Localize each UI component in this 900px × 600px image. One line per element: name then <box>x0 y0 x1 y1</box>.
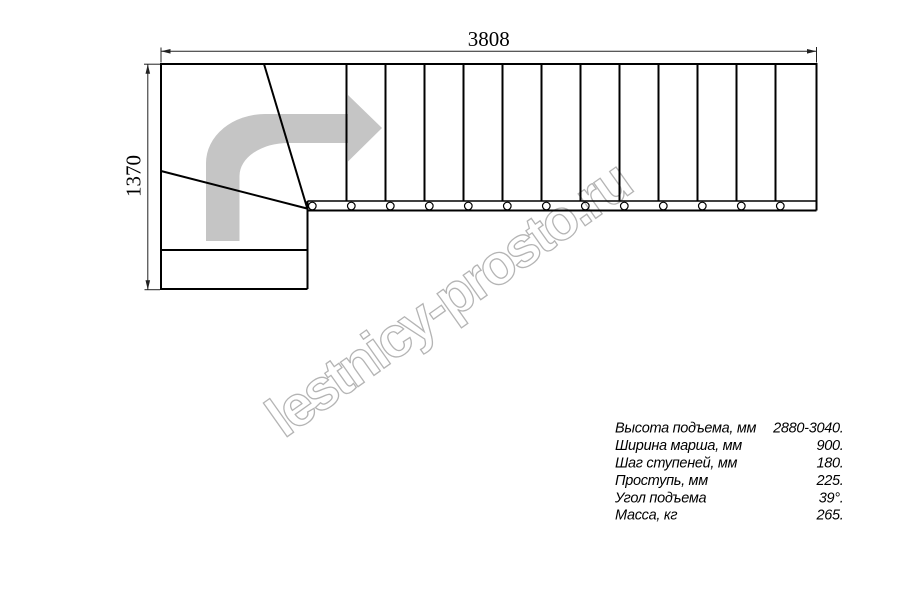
svg-text:39°.: 39°. <box>819 490 844 506</box>
svg-text:Угол подъема: Угол подъема <box>614 490 706 506</box>
svg-text:Проступь, мм: Проступь, мм <box>615 473 708 489</box>
svg-text:900.: 900. <box>816 438 843 454</box>
svg-text:1370: 1370 <box>122 155 146 197</box>
svg-text:Масса, кг: Масса, кг <box>615 508 677 524</box>
svg-text:2880-3040.: 2880-3040. <box>772 421 843 437</box>
svg-text:Высота подъема, мм: Высота подъема, мм <box>615 421 757 437</box>
svg-text:3808: 3808 <box>468 27 510 51</box>
svg-text:265.: 265. <box>815 508 843 524</box>
svg-text:180.: 180. <box>816 456 843 472</box>
svg-text:Шаг ступеней, мм: Шаг ступеней, мм <box>615 456 737 472</box>
svg-text:Ширина марша, мм: Ширина марша, мм <box>615 438 742 454</box>
svg-text:225.: 225. <box>815 473 843 489</box>
